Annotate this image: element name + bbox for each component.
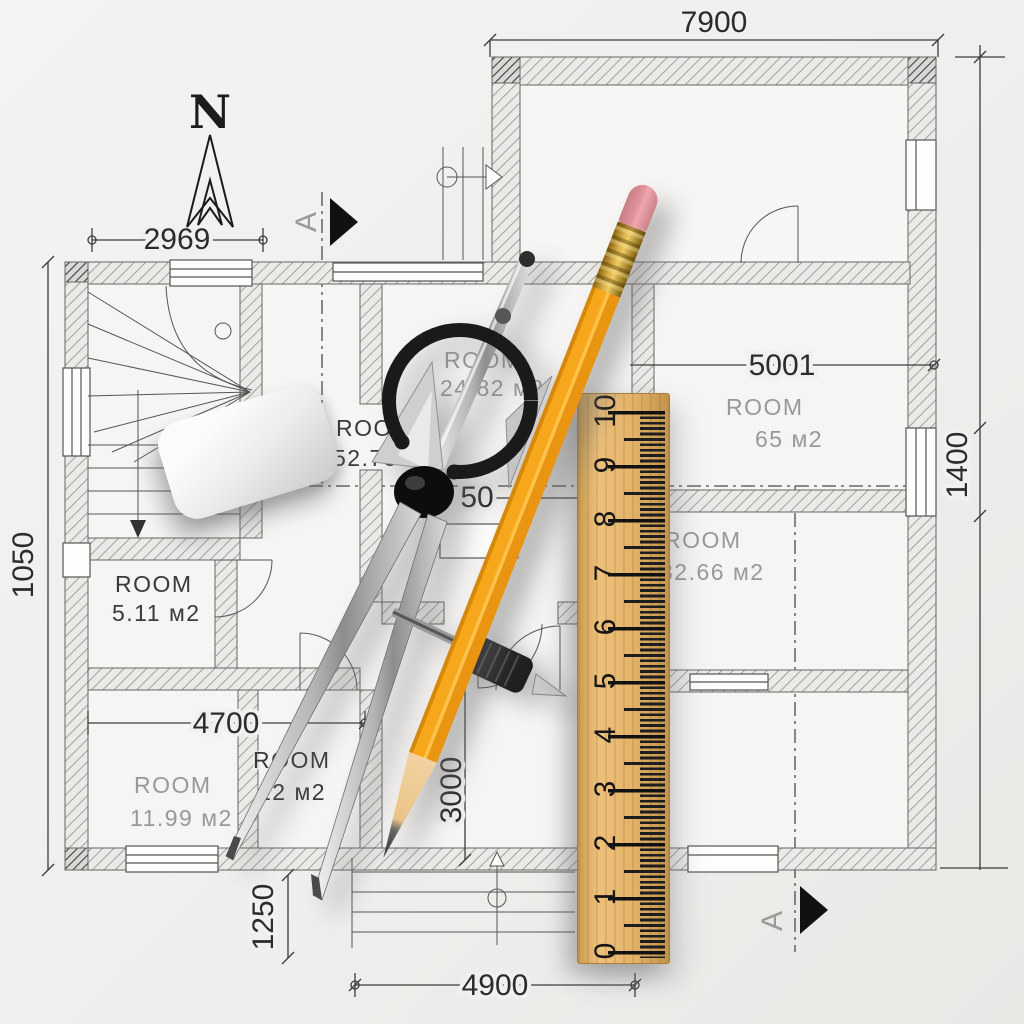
ruler-number: 5 [591,659,621,703]
ruler-number: 4 [591,713,621,757]
ruler: 0 1 2 3 4 5 6 7 8 9 10 [577,393,670,964]
ruler-number: 7 [591,551,621,595]
compass-knob-tip [532,674,566,696]
ruler-number: 9 [591,443,621,487]
ruler-number: 6 [591,605,621,649]
ruler-number: 0 [591,929,621,973]
ruler-number: 3 [591,767,621,811]
ruler-number: 2 [591,821,621,865]
ruler-number: 1 [591,875,621,919]
compass-rod-tip [519,251,535,267]
blueprint-photo: 7900 2969 5001 50 4700 3000 1250 4900 10… [0,0,1024,1024]
ruler-number: 8 [591,497,621,541]
ruler-number: 10 [591,389,621,433]
